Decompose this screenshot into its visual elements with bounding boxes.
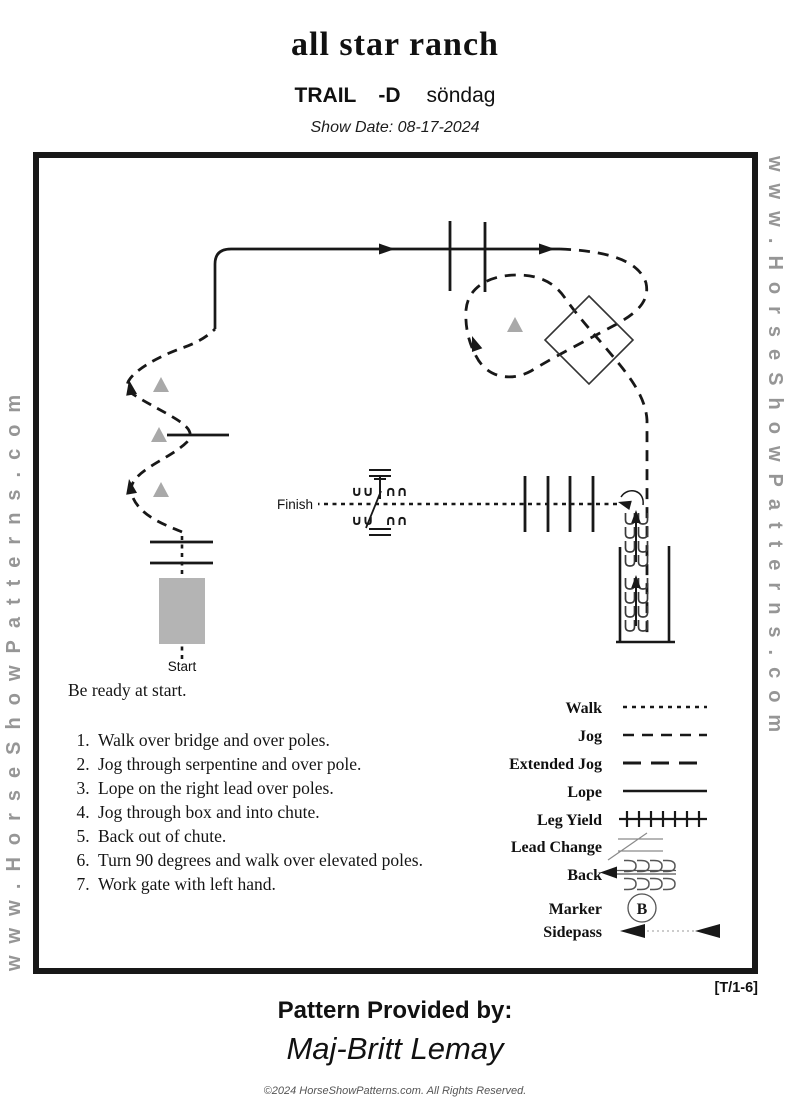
cone-1 — [153, 482, 169, 497]
class-line: TRAIL-Dsöndag — [0, 84, 790, 108]
instruction-item-3: Lope on the right lead over poles. — [94, 776, 448, 800]
watermark-left: www.HorseShowPatterns.com — [3, 156, 26, 971]
start-label: Start — [168, 659, 197, 674]
cone-loop — [507, 317, 523, 332]
provided-by-label: Pattern Provided by: — [0, 997, 790, 1025]
lope-poles — [450, 221, 485, 292]
instructions-list: Walk over bridge and over poles. Jog thr… — [68, 728, 448, 896]
instruction-item-4: Jog through box and into chute. — [94, 800, 448, 824]
instruction-item-6: Turn 90 degrees and walk over elevated p… — [94, 848, 448, 872]
instruction-item-7: Work gate with left hand. — [94, 872, 448, 896]
legend-label-marker: Marker — [549, 901, 602, 918]
gate-obstacle: ∪∪ ∩∩ ∪∪ ∩∩ — [351, 470, 408, 535]
arrow-right-1 — [379, 244, 395, 255]
provided-by-name: Maj-Britt Lemay — [0, 1031, 790, 1067]
cone-3 — [153, 377, 169, 392]
arrow-up-1 — [124, 478, 137, 495]
back-arrow-upper — [631, 510, 641, 523]
arrow-right-2 — [539, 244, 555, 255]
back-arrow-lower — [631, 575, 641, 588]
pattern-sheet: { "header": { "title": "all star ranch",… — [0, 0, 800, 1105]
page-reference: [T/1-6] — [715, 980, 759, 996]
legend-label-sidepass: Sidepass — [543, 924, 602, 941]
page-title: all star ranch — [0, 26, 790, 64]
jog-serpentine-line — [127, 329, 215, 532]
legend-label-leg-yield: Leg Yield — [537, 812, 602, 829]
finish-label: Finish — [277, 497, 313, 512]
arena-box: ∪∪ ∩∩ ∪∪ ∩∩ Finish Start Walk Jog Extend… — [33, 152, 758, 974]
lope-line — [215, 249, 560, 329]
legend-marker-symbol: B — [628, 894, 656, 922]
legend-back-symbol — [600, 861, 676, 890]
class-name: TRAIL — [295, 84, 357, 107]
box-obstacle — [545, 296, 633, 384]
svg-text:∪∪: ∪∪ — [351, 513, 374, 529]
instructions-block: Be ready at start. Walk over bridge and … — [68, 678, 448, 896]
legend: Walk Jog Extended Jog Lope Leg Yield Lea… — [509, 700, 720, 941]
svg-text:∩∩: ∩∩ — [385, 484, 408, 500]
cone-2 — [151, 427, 167, 442]
legend-leg-yield-symbol — [619, 811, 707, 827]
instruction-item-5: Back out of chute. — [94, 824, 448, 848]
class-suffix: -D — [378, 84, 400, 107]
legend-label-extended-jog: Extended Jog — [509, 756, 602, 773]
class-day: söndag — [427, 84, 496, 107]
legend-sidepass-symbol — [620, 924, 720, 938]
watermark-right: www.HorseShowPatterns.com — [763, 156, 786, 971]
legend-lead-change-symbol — [608, 833, 663, 860]
legend-label-lope: Lope — [567, 784, 602, 801]
svg-text:∪∪: ∪∪ — [351, 484, 374, 500]
legend-label-lead-change: Lead Change — [511, 839, 602, 856]
legend-label-back: Back — [567, 867, 602, 884]
bridge-obstacle — [159, 578, 205, 644]
instruction-item-1: Walk over bridge and over poles. — [94, 728, 448, 752]
marker-letter: B — [637, 901, 648, 918]
arrow-up-2 — [124, 379, 137, 396]
instruction-item-2: Jog through serpentine and over pole. — [94, 752, 448, 776]
legend-label-jog: Jog — [578, 728, 602, 745]
legend-label-walk: Walk — [566, 700, 603, 717]
svg-text:∩∩: ∩∩ — [385, 513, 408, 529]
arrow-left-walk — [617, 497, 632, 510]
copyright-line: ©2024 HorseShowPatterns.com. All Rights … — [0, 1085, 790, 1097]
instructions-intro: Be ready at start. — [68, 678, 448, 702]
show-date: Show Date: 08-17-2024 — [0, 119, 790, 137]
